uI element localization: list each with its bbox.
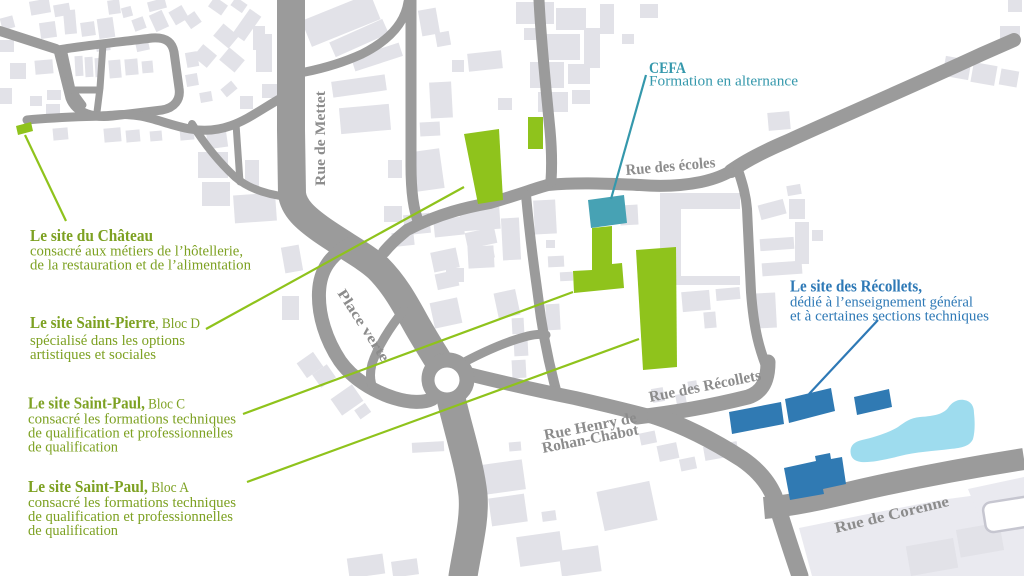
svg-text:Formation en alternance: Formation en alternance xyxy=(649,74,798,90)
svg-text:artistiques et sociales: artistiques et sociales xyxy=(30,347,156,363)
svg-text:de qualification: de qualification xyxy=(28,523,119,539)
svg-text:de la restauration et de l’ali: de la restauration et de l’alimentation xyxy=(30,258,252,274)
svg-text:Le site Saint-Paul, Bloc A: Le site Saint-Paul, Bloc A xyxy=(28,477,189,496)
svg-text:Le site Saint-Pierre, Bloc D: Le site Saint-Pierre, Bloc D xyxy=(30,313,200,332)
svg-text:Le site du Château: Le site du Château xyxy=(30,226,153,245)
svg-text:Rue de Mettet: Rue de Mettet xyxy=(313,91,329,186)
svg-text:Rue des écoles: Rue des écoles xyxy=(625,154,716,179)
svg-text:Le site Saint-Paul, Bloc C: Le site Saint-Paul, Bloc C xyxy=(28,394,185,413)
svg-text:et à certaines sections techni: et à certaines sections techniques xyxy=(790,309,989,325)
svg-text:de qualification: de qualification xyxy=(28,440,119,456)
svg-text:Le site des Récollets,: Le site des Récollets, xyxy=(790,277,922,296)
